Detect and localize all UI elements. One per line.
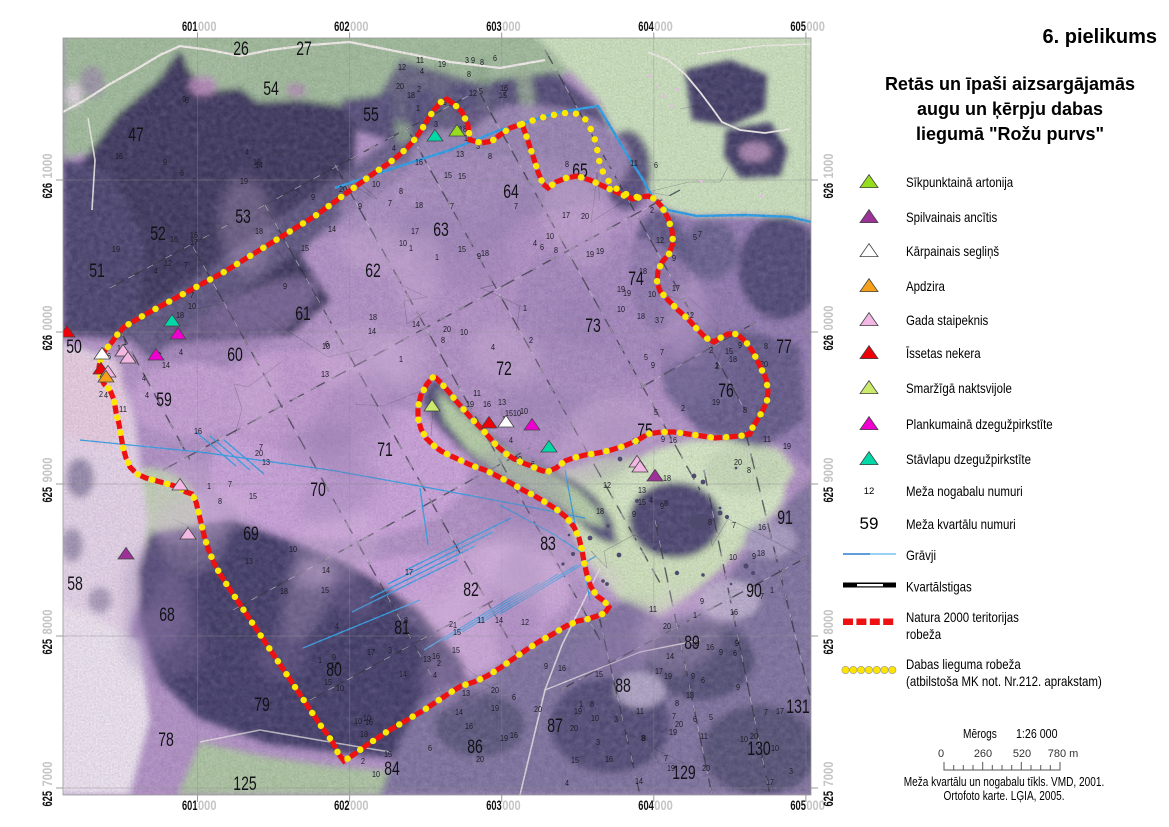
svg-text:17: 17 <box>655 666 663 676</box>
svg-text:605: 605 <box>790 19 806 34</box>
svg-text:17: 17 <box>562 210 570 220</box>
svg-text:12: 12 <box>521 617 529 627</box>
svg-text:Apdzira: Apdzira <box>906 278 945 294</box>
svg-text:15: 15 <box>595 669 603 679</box>
svg-text:7: 7 <box>184 260 188 270</box>
svg-text:14: 14 <box>495 615 503 625</box>
svg-text:000: 000 <box>654 798 673 813</box>
svg-text:9: 9 <box>736 682 740 692</box>
svg-text:82: 82 <box>463 580 479 601</box>
svg-text:8: 8 <box>441 335 445 345</box>
svg-text:14: 14 <box>368 326 376 336</box>
svg-text:14: 14 <box>322 565 330 575</box>
svg-text:1: 1 <box>693 610 697 620</box>
svg-text:69: 69 <box>243 524 259 545</box>
svg-text:17: 17 <box>405 567 413 577</box>
svg-text:8: 8 <box>399 186 403 196</box>
svg-text:7: 7 <box>764 707 768 717</box>
svg-text:15: 15 <box>384 749 392 759</box>
svg-text:17: 17 <box>672 283 680 293</box>
svg-text:16: 16 <box>706 642 714 652</box>
svg-text:10: 10 <box>188 301 196 311</box>
svg-text:15: 15 <box>452 645 460 655</box>
svg-text:130: 130 <box>747 739 770 760</box>
svg-text:4: 4 <box>179 347 183 357</box>
svg-text:88: 88 <box>615 676 631 697</box>
svg-text:17: 17 <box>776 706 784 716</box>
svg-text:602: 602 <box>334 798 350 813</box>
svg-text:20: 20 <box>734 457 742 467</box>
svg-text:8: 8 <box>554 245 558 255</box>
svg-text:Gada staipeknis: Gada staipeknis <box>906 312 988 328</box>
svg-text:7: 7 <box>660 315 664 325</box>
svg-text:3: 3 <box>596 737 600 747</box>
svg-text:000: 000 <box>350 19 369 34</box>
svg-text:16: 16 <box>115 151 123 161</box>
svg-text:78: 78 <box>158 730 174 751</box>
svg-text:4: 4 <box>142 373 146 383</box>
svg-text:Meža kvartālu un nogabalu tīkl: Meža kvartālu un nogabalu tīkls. VMD, 20… <box>904 774 1105 789</box>
svg-text:18: 18 <box>407 90 415 100</box>
svg-text:16: 16 <box>365 717 373 727</box>
svg-text:4: 4 <box>420 66 424 76</box>
svg-text:19: 19 <box>438 59 446 69</box>
svg-text:603: 603 <box>486 798 502 813</box>
svg-text:9: 9 <box>471 55 475 65</box>
svg-text:79: 79 <box>254 695 270 716</box>
svg-text:7: 7 <box>698 229 702 239</box>
svg-text:16: 16 <box>500 83 508 93</box>
svg-text:14: 14 <box>635 776 643 786</box>
svg-text:9: 9 <box>311 192 315 202</box>
svg-text:5: 5 <box>479 86 483 96</box>
svg-text:9: 9 <box>700 596 704 606</box>
svg-text:8: 8 <box>488 151 492 161</box>
svg-text:1: 1 <box>207 481 211 491</box>
svg-text:91: 91 <box>777 508 793 529</box>
svg-text:000: 000 <box>502 798 521 813</box>
svg-text:8: 8 <box>708 517 712 527</box>
svg-text:3: 3 <box>388 645 392 655</box>
svg-text:16: 16 <box>483 399 491 409</box>
svg-text:2: 2 <box>529 335 533 345</box>
svg-text:Spilvainais ancītis: Spilvainais ancītis <box>906 209 997 225</box>
svg-text:11: 11 <box>763 434 771 444</box>
svg-text:626: 626 <box>40 183 55 199</box>
svg-text:260: 260 <box>974 748 992 760</box>
svg-text:18: 18 <box>360 729 368 739</box>
svg-text:Kārpainais segliņš: Kārpainais segliņš <box>906 243 999 259</box>
svg-text:19: 19 <box>491 703 499 713</box>
svg-text:58: 58 <box>67 574 83 595</box>
svg-text:20: 20 <box>534 704 542 714</box>
svg-text:2: 2 <box>709 345 713 355</box>
svg-text:605: 605 <box>790 798 806 813</box>
svg-text:80: 80 <box>326 660 342 681</box>
svg-text:7: 7 <box>450 201 454 211</box>
svg-text:19: 19 <box>664 671 672 681</box>
svg-text:47: 47 <box>128 125 144 146</box>
svg-text:10: 10 <box>354 716 362 726</box>
svg-text:7000: 7000 <box>821 762 836 787</box>
svg-text:17: 17 <box>766 777 774 787</box>
svg-text:18: 18 <box>255 226 263 236</box>
svg-text:9000: 9000 <box>821 458 836 483</box>
svg-text:(atbilstoša MK not. Nr.212. ap: (atbilstoša MK not. Nr.212. aprakstam) <box>906 673 1102 689</box>
svg-text:6: 6 <box>180 168 184 178</box>
svg-text:1: 1 <box>399 354 403 364</box>
svg-text:9: 9 <box>735 638 739 648</box>
svg-text:20: 20 <box>491 685 499 695</box>
svg-text:8: 8 <box>218 496 222 506</box>
svg-text:19: 19 <box>466 399 474 409</box>
svg-text:1:26 000: 1:26 000 <box>1016 726 1058 741</box>
svg-text:6: 6 <box>693 714 697 724</box>
svg-text:16: 16 <box>465 721 473 731</box>
svg-text:11: 11 <box>119 404 127 414</box>
svg-text:11: 11 <box>700 731 708 741</box>
svg-text:14: 14 <box>399 669 407 679</box>
svg-text:000: 000 <box>198 798 217 813</box>
svg-text:4: 4 <box>509 435 513 445</box>
svg-text:4: 4 <box>154 266 158 276</box>
svg-text:9000: 9000 <box>40 458 55 483</box>
svg-text:5: 5 <box>709 712 713 722</box>
svg-text:4: 4 <box>649 495 653 505</box>
svg-text:7: 7 <box>664 753 668 763</box>
svg-text:18: 18 <box>596 506 604 516</box>
svg-text:10: 10 <box>399 238 407 248</box>
svg-text:77: 77 <box>776 337 792 358</box>
svg-text:20: 20 <box>443 324 451 334</box>
svg-text:1: 1 <box>416 103 420 113</box>
svg-text:augu un ķērpju dabas: augu un ķērpju dabas <box>917 99 1103 119</box>
svg-text:15: 15 <box>571 755 579 765</box>
svg-text:625: 625 <box>40 791 55 807</box>
svg-text:59: 59 <box>156 390 172 411</box>
svg-text:7: 7 <box>660 347 664 357</box>
svg-text:11: 11 <box>636 706 644 716</box>
svg-text:81: 81 <box>394 618 410 639</box>
svg-text:16: 16 <box>669 435 677 445</box>
svg-text:4: 4 <box>392 143 396 153</box>
svg-text:13: 13 <box>498 397 506 407</box>
svg-text:14: 14 <box>328 224 336 234</box>
svg-text:10: 10 <box>372 179 380 189</box>
svg-text:625: 625 <box>821 791 836 807</box>
svg-text:11: 11 <box>649 604 657 614</box>
svg-text:6: 6 <box>701 675 705 685</box>
svg-text:20: 20 <box>663 621 671 631</box>
svg-text:Mērogs: Mērogs <box>963 726 997 741</box>
svg-text:Smaržīgā naktsvijole: Smaržīgā naktsvijole <box>906 380 1012 396</box>
svg-text:601: 601 <box>182 798 198 813</box>
svg-text:18: 18 <box>757 548 765 558</box>
svg-text:000: 000 <box>654 19 673 34</box>
svg-text:10: 10 <box>648 289 656 299</box>
svg-text:2: 2 <box>361 756 365 766</box>
svg-text:20: 20 <box>675 719 683 729</box>
svg-text:9: 9 <box>672 253 676 263</box>
svg-text:liegumā "Rožu purvs": liegumā "Rožu purvs" <box>916 124 1104 144</box>
svg-text:10: 10 <box>460 327 468 337</box>
svg-text:50: 50 <box>66 337 82 358</box>
svg-text:2: 2 <box>417 84 421 94</box>
svg-text:9: 9 <box>651 360 655 370</box>
svg-text:3: 3 <box>434 119 438 129</box>
svg-text:Ortofoto karte. LĢIA, 2005.: Ortofoto karte. LĢIA, 2005. <box>944 788 1065 803</box>
svg-text:10: 10 <box>513 408 521 418</box>
svg-text:15: 15 <box>638 497 646 507</box>
svg-text:14: 14 <box>255 160 263 170</box>
svg-text:Natura 2000 teritorijas: Natura 2000 teritorijas <box>906 609 1019 625</box>
svg-text:18: 18 <box>637 311 645 321</box>
svg-text:Meža nogabalu numuri: Meža nogabalu numuri <box>906 483 1023 499</box>
svg-text:20: 20 <box>396 81 404 91</box>
svg-text:63: 63 <box>433 220 449 241</box>
svg-text:10: 10 <box>617 304 625 314</box>
svg-text:15: 15 <box>458 171 466 181</box>
svg-text:10: 10 <box>322 341 330 351</box>
svg-text:1000: 1000 <box>40 154 55 179</box>
svg-text:9: 9 <box>661 434 665 444</box>
svg-text:8: 8 <box>743 405 747 415</box>
svg-text:9: 9 <box>752 551 756 561</box>
svg-text:Stāvlapu dzegužpirkstīte: Stāvlapu dzegužpirkstīte <box>906 451 1031 467</box>
svg-text:4: 4 <box>245 147 249 157</box>
svg-text:602: 602 <box>334 19 350 34</box>
svg-text:601: 601 <box>182 19 198 34</box>
svg-text:27: 27 <box>296 39 312 60</box>
svg-text:7: 7 <box>388 198 392 208</box>
svg-text:13: 13 <box>686 690 694 700</box>
svg-text:4: 4 <box>533 238 537 248</box>
svg-text:125: 125 <box>233 774 256 795</box>
svg-text:9: 9 <box>182 94 186 104</box>
svg-text:0: 0 <box>938 748 944 760</box>
svg-text:626: 626 <box>821 183 836 199</box>
svg-text:12: 12 <box>864 486 875 497</box>
svg-text:18: 18 <box>176 310 184 320</box>
svg-text:18: 18 <box>415 200 423 210</box>
svg-text:54: 54 <box>263 79 279 100</box>
svg-text:6. pielikums: 6. pielikums <box>1043 26 1158 48</box>
svg-text:13: 13 <box>638 485 646 495</box>
svg-text:53: 53 <box>235 207 251 228</box>
svg-text:19: 19 <box>783 441 791 451</box>
svg-text:8000: 8000 <box>821 610 836 635</box>
svg-text:14: 14 <box>455 707 463 717</box>
svg-text:13: 13 <box>245 556 253 566</box>
svg-text:51: 51 <box>89 261 105 282</box>
svg-text:4: 4 <box>335 621 339 631</box>
svg-text:626: 626 <box>40 335 55 351</box>
svg-text:14: 14 <box>162 360 170 370</box>
svg-text:72: 72 <box>496 359 512 380</box>
svg-text:8: 8 <box>565 159 569 169</box>
svg-text:robeža: robeža <box>906 626 941 642</box>
svg-text:15: 15 <box>458 244 466 254</box>
svg-text:9: 9 <box>544 661 548 671</box>
svg-text:Meža kvartālu numuri: Meža kvartālu numuri <box>906 516 1016 532</box>
svg-text:73: 73 <box>585 316 601 337</box>
svg-text:2: 2 <box>681 403 685 413</box>
svg-text:604: 604 <box>638 19 654 34</box>
svg-text:10: 10 <box>336 683 344 693</box>
svg-text:4: 4 <box>145 390 149 400</box>
svg-text:17: 17 <box>190 237 198 247</box>
svg-text:4: 4 <box>433 670 437 680</box>
svg-text:1: 1 <box>579 699 583 709</box>
svg-text:16: 16 <box>730 607 738 617</box>
svg-text:6: 6 <box>654 160 658 170</box>
svg-text:7: 7 <box>672 711 676 721</box>
svg-text:000: 000 <box>806 19 825 34</box>
svg-text:19: 19 <box>617 284 625 294</box>
svg-text:16: 16 <box>194 426 202 436</box>
svg-text:000: 000 <box>198 19 217 34</box>
svg-text:16: 16 <box>758 522 766 532</box>
svg-text:6: 6 <box>733 648 737 658</box>
svg-text:129: 129 <box>672 763 695 784</box>
svg-text:17: 17 <box>411 226 419 236</box>
svg-text:520: 520 <box>1013 748 1031 760</box>
svg-text:15: 15 <box>249 491 257 501</box>
svg-text:4: 4 <box>565 778 569 788</box>
svg-text:16: 16 <box>415 157 423 167</box>
svg-text:10: 10 <box>372 769 380 779</box>
svg-text:7: 7 <box>732 520 736 530</box>
svg-text:89: 89 <box>684 633 700 654</box>
svg-text:13: 13 <box>456 149 464 159</box>
svg-text:Īssetas nekera: Īssetas nekera <box>906 345 981 361</box>
svg-text:18: 18 <box>663 473 671 483</box>
svg-text:2: 2 <box>650 205 654 215</box>
svg-text:10: 10 <box>289 544 297 554</box>
svg-text:5: 5 <box>654 407 658 417</box>
svg-text:8: 8 <box>467 69 471 79</box>
svg-text:10: 10 <box>520 406 528 416</box>
svg-text:1000: 1000 <box>821 154 836 179</box>
svg-text:15: 15 <box>301 243 309 253</box>
svg-text:8000: 8000 <box>40 610 55 635</box>
svg-text:3: 3 <box>465 55 469 65</box>
svg-text:87: 87 <box>547 716 563 737</box>
svg-text:11: 11 <box>416 55 424 65</box>
svg-text:84: 84 <box>384 759 400 780</box>
svg-text:9: 9 <box>163 157 167 167</box>
svg-text:83: 83 <box>540 534 556 555</box>
svg-text:90: 90 <box>746 581 762 602</box>
svg-text:Dabas lieguma robeža: Dabas lieguma robeža <box>906 656 1021 672</box>
svg-text:780 m: 780 m <box>1048 748 1079 760</box>
svg-text:9: 9 <box>358 201 362 211</box>
svg-text:603: 603 <box>486 19 502 34</box>
svg-text:13: 13 <box>462 688 470 698</box>
svg-text:11: 11 <box>630 158 638 168</box>
svg-text:18: 18 <box>481 248 489 258</box>
svg-text:13: 13 <box>262 457 270 467</box>
svg-text:3: 3 <box>614 714 618 724</box>
svg-text:8: 8 <box>764 341 768 351</box>
svg-text:2: 2 <box>715 361 719 371</box>
svg-text:10: 10 <box>729 552 737 562</box>
svg-text:0000: 0000 <box>821 306 836 331</box>
svg-text:86: 86 <box>467 737 483 758</box>
svg-text:14: 14 <box>412 319 420 329</box>
svg-text:8: 8 <box>675 698 679 708</box>
svg-text:17: 17 <box>367 647 375 657</box>
svg-text:4: 4 <box>491 342 495 352</box>
svg-text:11: 11 <box>473 388 481 398</box>
svg-text:2: 2 <box>99 389 103 399</box>
svg-text:1: 1 <box>409 243 413 253</box>
svg-text:7: 7 <box>259 442 263 452</box>
svg-text:14: 14 <box>666 651 674 661</box>
svg-text:Kvartālstigas: Kvartālstigas <box>906 579 972 595</box>
svg-text:62: 62 <box>365 261 381 282</box>
svg-text:16: 16 <box>510 730 518 740</box>
svg-text:13: 13 <box>423 654 431 664</box>
svg-text:2: 2 <box>437 658 441 668</box>
svg-text:20: 20 <box>702 763 710 773</box>
svg-text:604: 604 <box>638 798 654 813</box>
svg-text:16: 16 <box>170 234 178 244</box>
svg-text:Grāvji: Grāvji <box>906 547 936 563</box>
svg-text:16: 16 <box>605 754 613 764</box>
svg-text:000: 000 <box>502 19 521 34</box>
svg-text:12: 12 <box>398 62 406 72</box>
svg-text:131: 131 <box>786 697 809 718</box>
svg-text:68: 68 <box>159 605 175 626</box>
svg-text:64: 64 <box>503 182 519 203</box>
svg-text:1: 1 <box>770 585 774 595</box>
svg-text:20: 20 <box>570 723 578 733</box>
svg-text:18: 18 <box>369 312 377 322</box>
svg-text:10: 10 <box>591 713 599 723</box>
svg-text:20: 20 <box>581 211 589 221</box>
svg-text:61: 61 <box>295 304 311 325</box>
svg-text:12: 12 <box>603 480 611 490</box>
svg-text:12: 12 <box>164 258 172 268</box>
svg-text:9: 9 <box>691 671 695 681</box>
svg-text:1: 1 <box>453 620 457 630</box>
svg-text:19: 19 <box>112 244 120 254</box>
svg-text:19: 19 <box>596 246 604 256</box>
svg-text:13: 13 <box>321 369 329 379</box>
svg-text:70: 70 <box>310 480 326 501</box>
svg-text:9: 9 <box>632 509 636 519</box>
svg-text:8: 8 <box>642 733 646 743</box>
svg-text:6: 6 <box>540 242 544 252</box>
svg-text:19: 19 <box>500 733 508 743</box>
svg-text:8: 8 <box>747 465 751 475</box>
svg-text:7: 7 <box>228 479 232 489</box>
svg-text:18: 18 <box>729 354 737 364</box>
svg-text:9: 9 <box>719 647 723 657</box>
svg-text:4: 4 <box>104 390 108 400</box>
svg-text:7000: 7000 <box>40 762 55 787</box>
svg-text:8: 8 <box>480 57 484 67</box>
svg-text:12: 12 <box>656 235 664 245</box>
svg-text:5: 5 <box>693 232 697 242</box>
svg-text:1: 1 <box>318 655 322 665</box>
svg-text:10: 10 <box>546 231 554 241</box>
svg-text:6: 6 <box>512 692 516 702</box>
svg-text:Plankumainā dzegužpirkstīte: Plankumainā dzegužpirkstīte <box>906 416 1053 432</box>
svg-text:59: 59 <box>860 514 879 533</box>
svg-text:0000: 0000 <box>40 306 55 331</box>
